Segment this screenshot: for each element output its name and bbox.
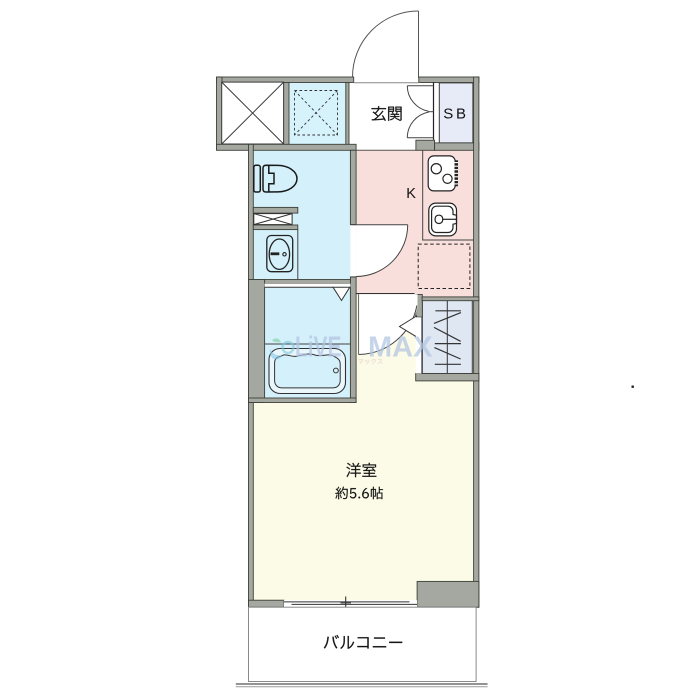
svg-text:SB: SB — [443, 105, 469, 122]
svg-text:MAX: MAX — [368, 332, 433, 364]
svg-text:LiVE: LiVE — [295, 331, 341, 363]
svg-text:K: K — [406, 186, 416, 202]
